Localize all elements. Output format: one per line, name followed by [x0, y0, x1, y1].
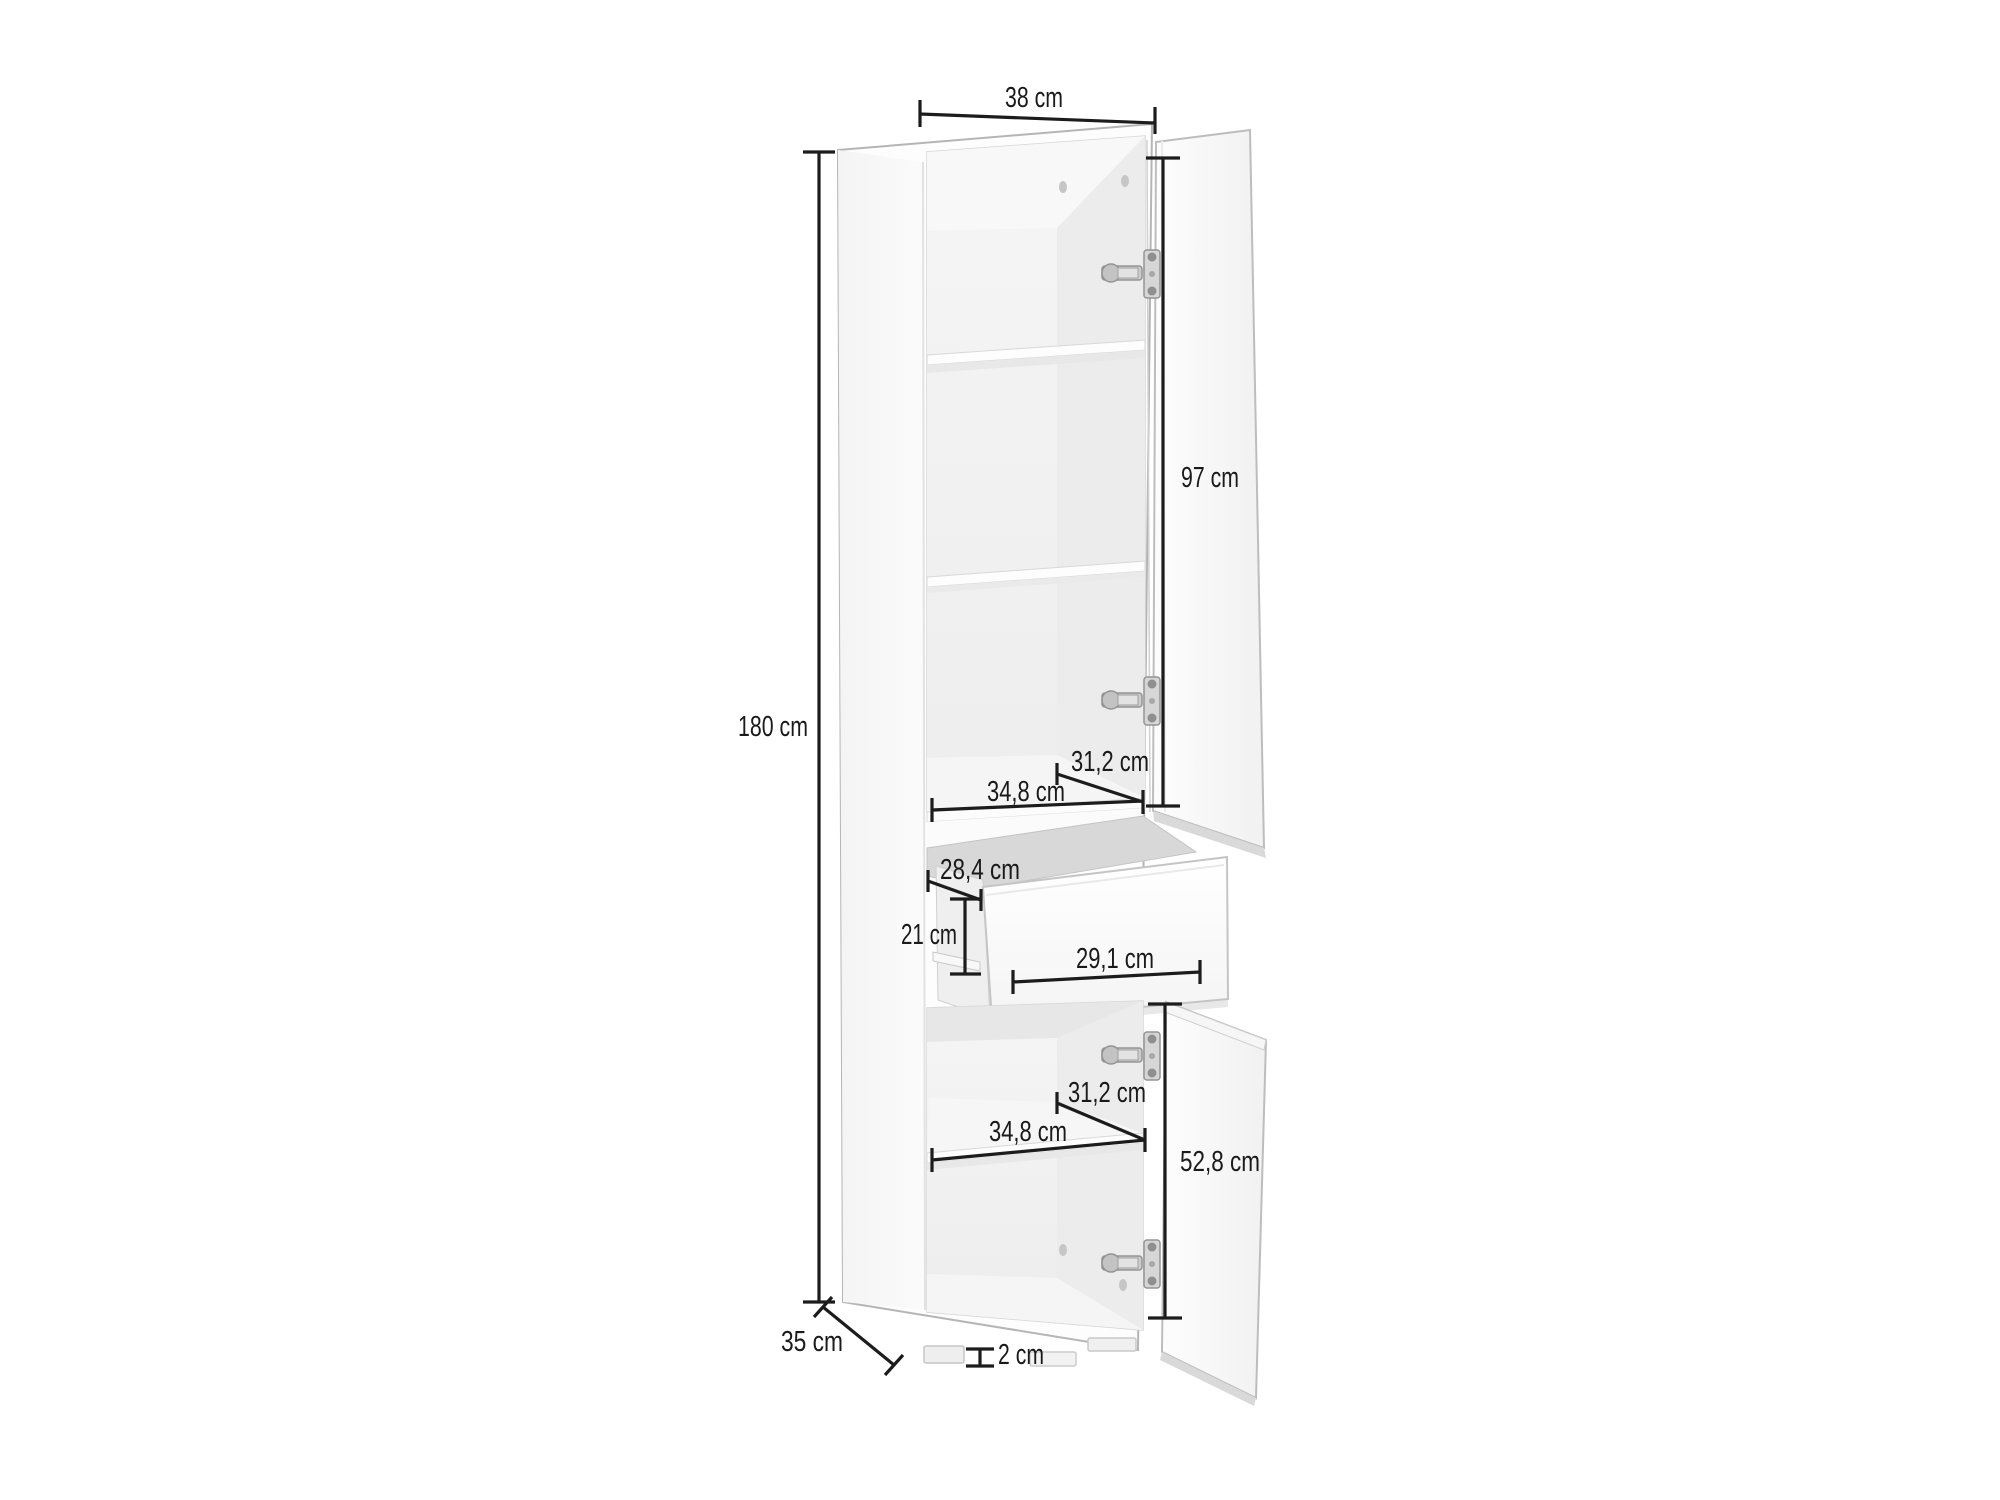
- lower-door-height-label: 52,8 cm: [1180, 1146, 1260, 1178]
- cabinet-illustration: [838, 124, 1266, 1406]
- dim-cabinet-height: 180 cm: [738, 152, 835, 1302]
- drawer-opening-height-label: 21 cm: [901, 919, 957, 951]
- lower-interior-depth-label: 31,2 cm: [1068, 1077, 1146, 1109]
- ceiling-hole: [1059, 181, 1067, 193]
- foot: [924, 1346, 964, 1363]
- upper-interior-width-label: 34,8 cm: [987, 776, 1065, 808]
- cabinet-dimension-figure: 38 cm 180 cm 97 cm 31,2 cm 34,8 cm 28,4 …: [0, 0, 2000, 1500]
- cabinet-depth-label: 35 cm: [781, 1326, 843, 1358]
- drawer-front-width-label: 29,1 cm: [1076, 943, 1154, 975]
- upper-interior-depth-label: 31,2 cm: [1071, 746, 1149, 778]
- cabinet-left-side-panel: [838, 150, 925, 1310]
- dimension-diagram-canvas: 38 cm 180 cm 97 cm 31,2 cm 34,8 cm 28,4 …: [0, 0, 2000, 1500]
- drawer-section: [927, 808, 1228, 1029]
- foot-height-label: 2 cm: [998, 1339, 1044, 1371]
- lower-door-open: [1162, 1002, 1266, 1398]
- upper-back-wall: [927, 228, 1057, 758]
- ceiling-hole: [1121, 175, 1129, 187]
- upper-compartment: [927, 136, 1145, 822]
- foot: [1088, 1338, 1136, 1351]
- cabinet-width-label: 38 cm: [1005, 82, 1063, 114]
- shelf-pin-hole: [1119, 1279, 1127, 1291]
- lower-interior-width-label: 34,8 cm: [989, 1116, 1067, 1148]
- upper-door-height-label: 97 cm: [1181, 462, 1239, 494]
- shelf-pin-hole: [1059, 1244, 1067, 1256]
- cabinet-height-label: 180 cm: [738, 711, 808, 743]
- dim-foot-height: 2 cm: [966, 1339, 1044, 1371]
- drawer-interior-depth-label: 28,4 cm: [940, 854, 1020, 886]
